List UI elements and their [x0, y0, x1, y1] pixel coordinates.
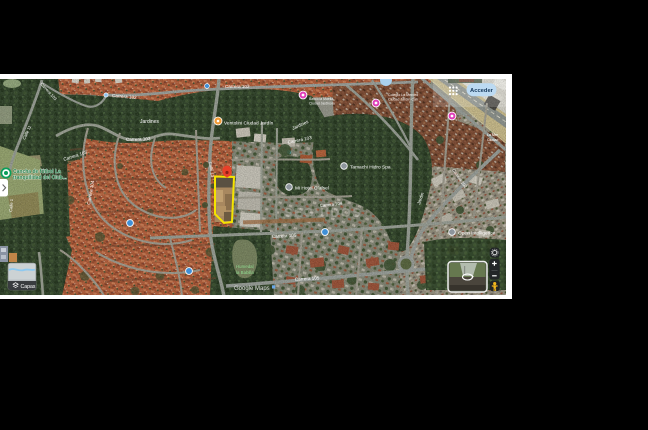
svg-text:Carrera 103: Carrera 103	[126, 136, 151, 142]
svg-text:Humedal: Humedal	[236, 264, 254, 269]
svg-text:La Mer: La Mer	[487, 133, 499, 137]
svg-text:Tamachi Hidro Spa: Tamachi Hidro Spa	[350, 165, 391, 171]
svg-text:Colegio La Merced: Colegio La Merced	[388, 93, 418, 97]
svg-text:tranquilidad del Club...: tranquilidad del Club...	[13, 175, 68, 181]
svg-text:Carrera 102: Carrera 102	[225, 84, 250, 89]
svg-text:Ciudad Jardinota: Ciudad Jardinota	[309, 102, 335, 106]
svg-text:Banco la Maelia: Banco la Maelia	[309, 97, 333, 101]
svg-text:Ciudad: Ciudad	[487, 138, 498, 142]
svg-text:Capas: Capas	[21, 284, 36, 290]
svg-text:la Babilla: la Babilla	[236, 270, 254, 275]
svg-text:Acceder: Acceder	[470, 88, 494, 94]
svg-text:Mi Hotel Olafsel: Mi Hotel Olafsel	[295, 186, 329, 192]
svg-text:Google Maps: Google Maps	[234, 286, 270, 292]
svg-text:Ventolini Ciudad Jardín: Ventolini Ciudad Jardín	[224, 121, 274, 127]
svg-text:Jardines: Jardines	[140, 119, 159, 125]
svg-text:Open Intelligence: Open Intelligence	[458, 231, 496, 237]
svg-text:Ciudad Jardín Cali: Ciudad Jardín Cali	[388, 98, 418, 102]
svg-text:SEGUIDOS: SEGUIDOS	[284, 206, 362, 220]
